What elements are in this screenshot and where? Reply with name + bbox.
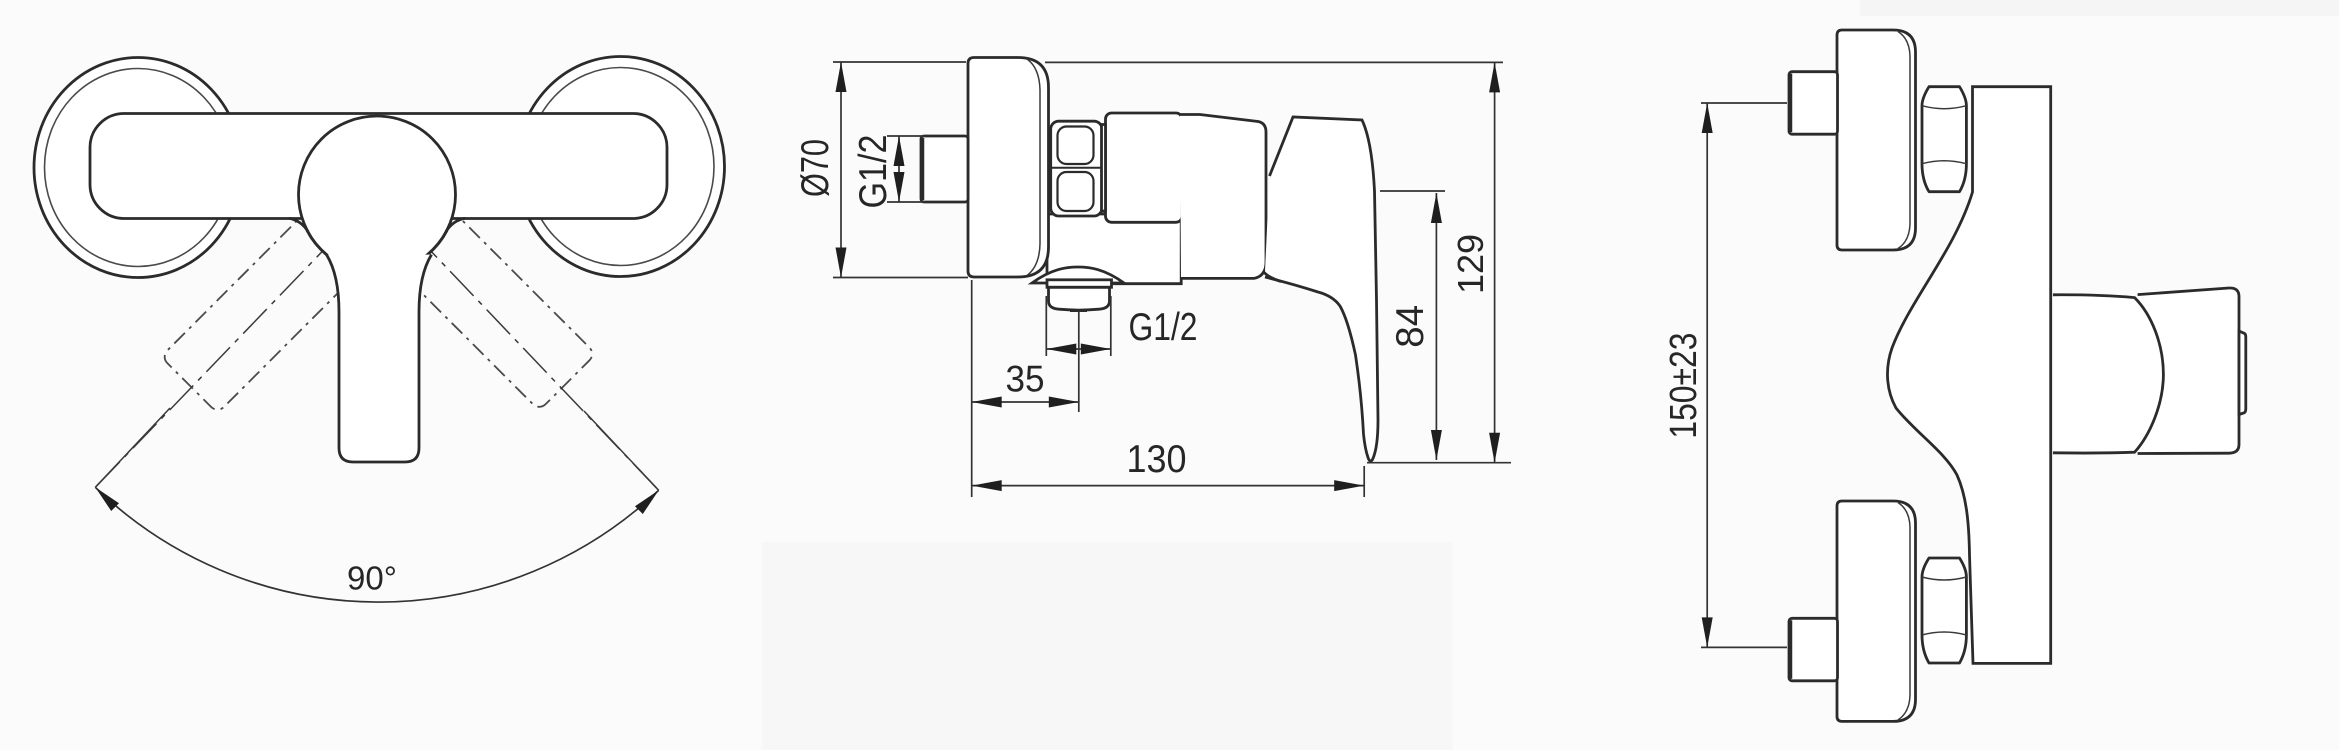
svg-text:129: 129 bbox=[1450, 234, 1491, 294]
svg-text:130: 130 bbox=[1127, 438, 1187, 481]
svg-text:90°: 90° bbox=[347, 560, 397, 597]
svg-text:35: 35 bbox=[1006, 359, 1045, 400]
svg-text:150±23: 150±23 bbox=[1663, 333, 1705, 439]
svg-text:Ø70: Ø70 bbox=[794, 139, 837, 197]
svg-text:G1/2: G1/2 bbox=[852, 135, 895, 209]
svg-text:G1/2: G1/2 bbox=[1129, 306, 1198, 349]
svg-text:84: 84 bbox=[1389, 305, 1432, 348]
